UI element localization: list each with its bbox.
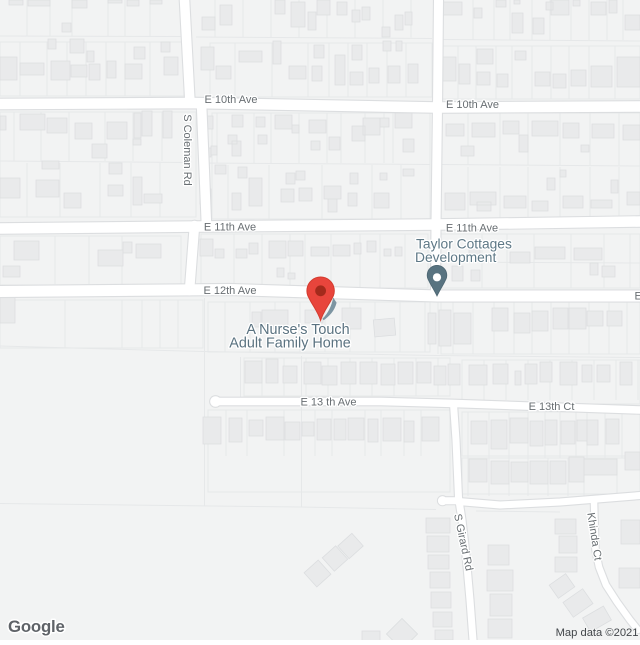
svg-text:E 11th Ave: E 11th Ave	[204, 222, 256, 234]
svg-text:Google: Google	[8, 617, 65, 636]
svg-text:E 13 th Ave: E 13 th Ave	[300, 397, 356, 409]
svg-text:E 11th Ave: E 11th Ave	[446, 223, 498, 235]
svg-text:Map data ©2021: Map data ©2021	[556, 627, 639, 639]
svg-text:E 1: E 1	[635, 291, 640, 303]
svg-text:E 10th Ave: E 10th Ave	[446, 99, 499, 111]
svg-text:E 10th Ave: E 10th Ave	[204, 94, 257, 106]
svg-text:Adult Family Home: Adult Family Home	[229, 336, 351, 352]
svg-text:S Coleman Rd: S Coleman Rd	[181, 114, 193, 186]
svg-text:Development: Development	[415, 250, 496, 265]
svg-text:E 12th Ave: E 12th Ave	[203, 285, 256, 297]
svg-text:E 13th Ct: E 13th Ct	[529, 401, 575, 413]
